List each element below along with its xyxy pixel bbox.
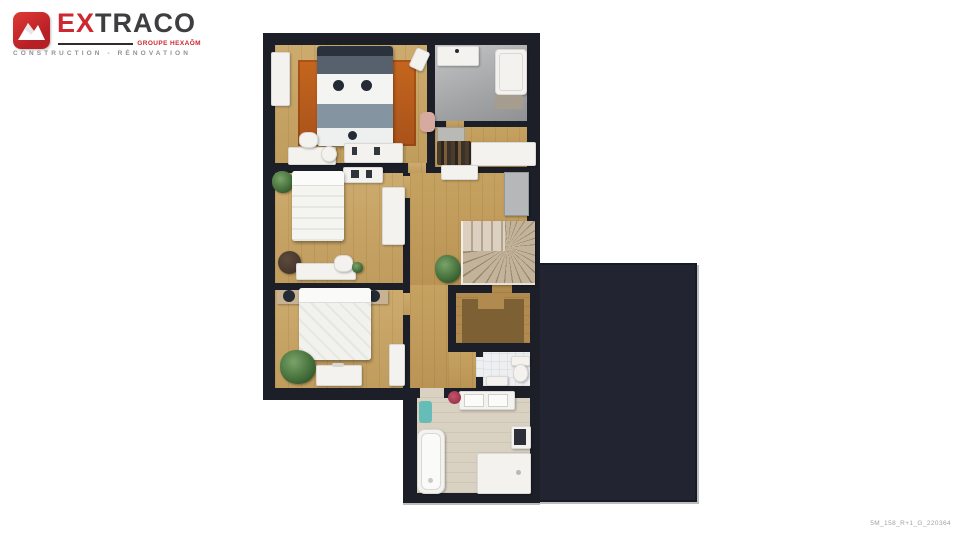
plan-reference-code: 5M_158_R+1_G_220364 [870, 520, 951, 527]
desk-chair-bedroom-1 [299, 132, 318, 148]
void-area [530, 263, 697, 502]
plant-bedroom-2 [272, 171, 294, 193]
armchair-bedroom-1 [420, 112, 435, 132]
winder-staircase [461, 221, 535, 285]
shelf-decor [351, 170, 359, 178]
sink-left [464, 394, 484, 407]
sink-right [488, 394, 508, 407]
bed1-headboard [317, 46, 393, 56]
bed1-mattress [317, 74, 393, 104]
toilet-bowl [513, 364, 528, 382]
bathtub-drain [428, 478, 433, 483]
dresser-decor-2 [374, 147, 380, 155]
bathtub-top-inner [499, 53, 523, 91]
bed2-duvet [292, 186, 344, 241]
wardrobe-bedroom-1 [271, 52, 290, 106]
bed-bedroom-3 [299, 288, 371, 360]
bath-mat-teal [419, 401, 432, 423]
washing-machine [511, 426, 531, 449]
bathtub-bathroom-bottom [417, 429, 445, 494]
bed-bedroom-2 [292, 171, 344, 241]
page: { "brand": { "name_ex": "EX", "name_trac… [0, 0, 960, 540]
bench-handle [332, 363, 344, 367]
shower-tray [477, 453, 531, 494]
door-opening-dressing [492, 285, 512, 293]
shower-drain [516, 470, 521, 475]
plant-hallway [435, 255, 461, 283]
hanging-clothes [437, 141, 471, 165]
storage-box-closet [437, 127, 465, 142]
washbasin-faucet [455, 49, 459, 53]
washing-machine-door [514, 429, 526, 445]
wardrobe-bedroom-2 [382, 187, 405, 245]
bed2-pillows [292, 171, 344, 186]
shelf-bedroom-2 [343, 167, 383, 183]
desk-chair-bedroom-2 [334, 255, 353, 272]
bed1-cushion-right [361, 80, 372, 91]
bed3-duvet [299, 303, 371, 360]
room-hallway-floor-wc-access [448, 352, 476, 388]
plant-bedroom-3 [280, 350, 316, 384]
bed-bedroom-1 [317, 46, 393, 146]
door-opening-bathroom-bottom [420, 388, 444, 398]
door-opening-bedroom-1 [408, 163, 426, 173]
bed3-pillows [299, 288, 371, 303]
lamp-left [283, 290, 295, 302]
floor-plan [0, 0, 960, 540]
cabinet-hallway [504, 172, 529, 216]
bed1-blanket [317, 104, 393, 128]
bathtub-bathroom-top [495, 49, 527, 95]
room-hallway-floor-corridor [410, 285, 448, 388]
dresser-decor [352, 147, 357, 155]
flowers-bathroom [448, 391, 461, 404]
shelf-hallway [441, 165, 478, 180]
dressing-floor-light-notch [478, 293, 504, 309]
shelf-decor-2 [366, 170, 372, 178]
bath-mat-top [495, 95, 523, 109]
bed1-pillow-band [317, 56, 393, 74]
dresser-closet [471, 142, 536, 166]
bench-bedroom-3 [316, 365, 362, 386]
plant-small-bedroom-2 [352, 262, 363, 273]
door-opening-bedroom-3 [403, 293, 410, 315]
door-opening-wc [476, 357, 483, 377]
vase-bedroom-1 [321, 146, 337, 162]
bed1-foot-cushion [348, 131, 357, 140]
staircase-straight-flight [463, 221, 505, 251]
wardrobe-bedroom-3 [389, 344, 405, 386]
wc-shelf [486, 376, 508, 386]
bed1-cushion-left [333, 80, 344, 91]
